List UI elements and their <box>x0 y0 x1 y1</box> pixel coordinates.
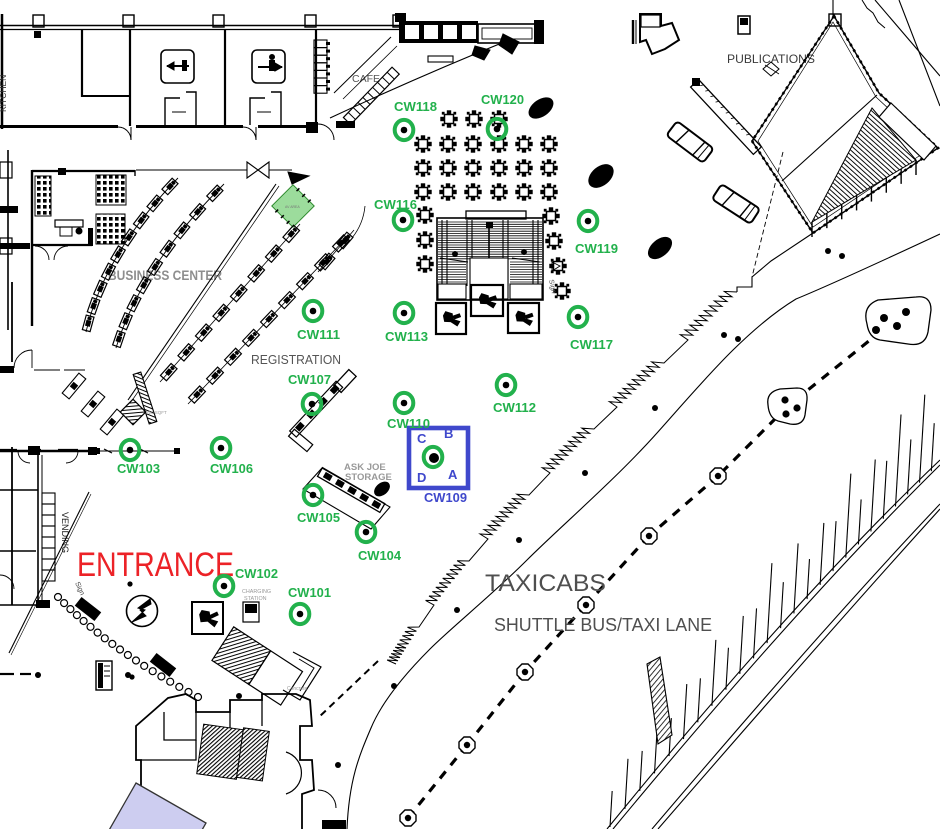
svg-text:BUSINESS CENTER: BUSINESS CENTER <box>108 268 222 283</box>
svg-text:SHUTTLE BUS/TAXI LANE: SHUTTLE BUS/TAXI LANE <box>494 615 712 635</box>
svg-text:CW106: CW106 <box>210 461 253 476</box>
svg-text:CW118: CW118 <box>394 99 437 114</box>
svg-text:TAXICABS: TAXICABS <box>485 570 606 597</box>
svg-text:CHARGING: CHARGING <box>242 589 271 595</box>
svg-text:CW104: CW104 <box>358 548 402 563</box>
svg-text:Concrete: Concrete <box>287 686 308 692</box>
svg-text:CW120: CW120 <box>481 92 524 107</box>
svg-text:KITCHEN: KITCHEN <box>0 75 8 112</box>
svg-text:D: D <box>417 470 426 485</box>
svg-text:CW112: CW112 <box>493 400 536 415</box>
svg-text:STORAGE: STORAGE <box>345 472 392 483</box>
svg-text:CW113: CW113 <box>385 329 428 344</box>
svg-text:STATION: STATION <box>244 596 267 602</box>
svg-text:ENTRANCE: ENTRANCE <box>77 546 234 584</box>
svg-text:A: A <box>448 467 458 482</box>
svg-text:CW105: CW105 <box>297 510 340 525</box>
svg-text:CW119: CW119 <box>575 241 618 256</box>
svg-text:AV AREA: AV AREA <box>285 205 300 209</box>
svg-text:REGISTRATION: REGISTRATION <box>251 352 341 367</box>
svg-text:CW102: CW102 <box>235 566 278 581</box>
svg-text:CW116: CW116 <box>374 197 417 212</box>
svg-text:CW109: CW109 <box>424 490 467 505</box>
svg-text:510 SQFT: 510 SQFT <box>146 410 167 415</box>
svg-text:CW101: CW101 <box>288 585 331 600</box>
svg-text:CW103: CW103 <box>117 461 160 476</box>
svg-text:CW111: CW111 <box>297 327 340 342</box>
svg-text:C: C <box>417 431 427 446</box>
svg-text:B: B <box>444 426 453 441</box>
svg-text:CW117: CW117 <box>570 337 613 352</box>
svg-text:CW107: CW107 <box>288 372 331 387</box>
svg-text:CW110: CW110 <box>387 416 430 431</box>
